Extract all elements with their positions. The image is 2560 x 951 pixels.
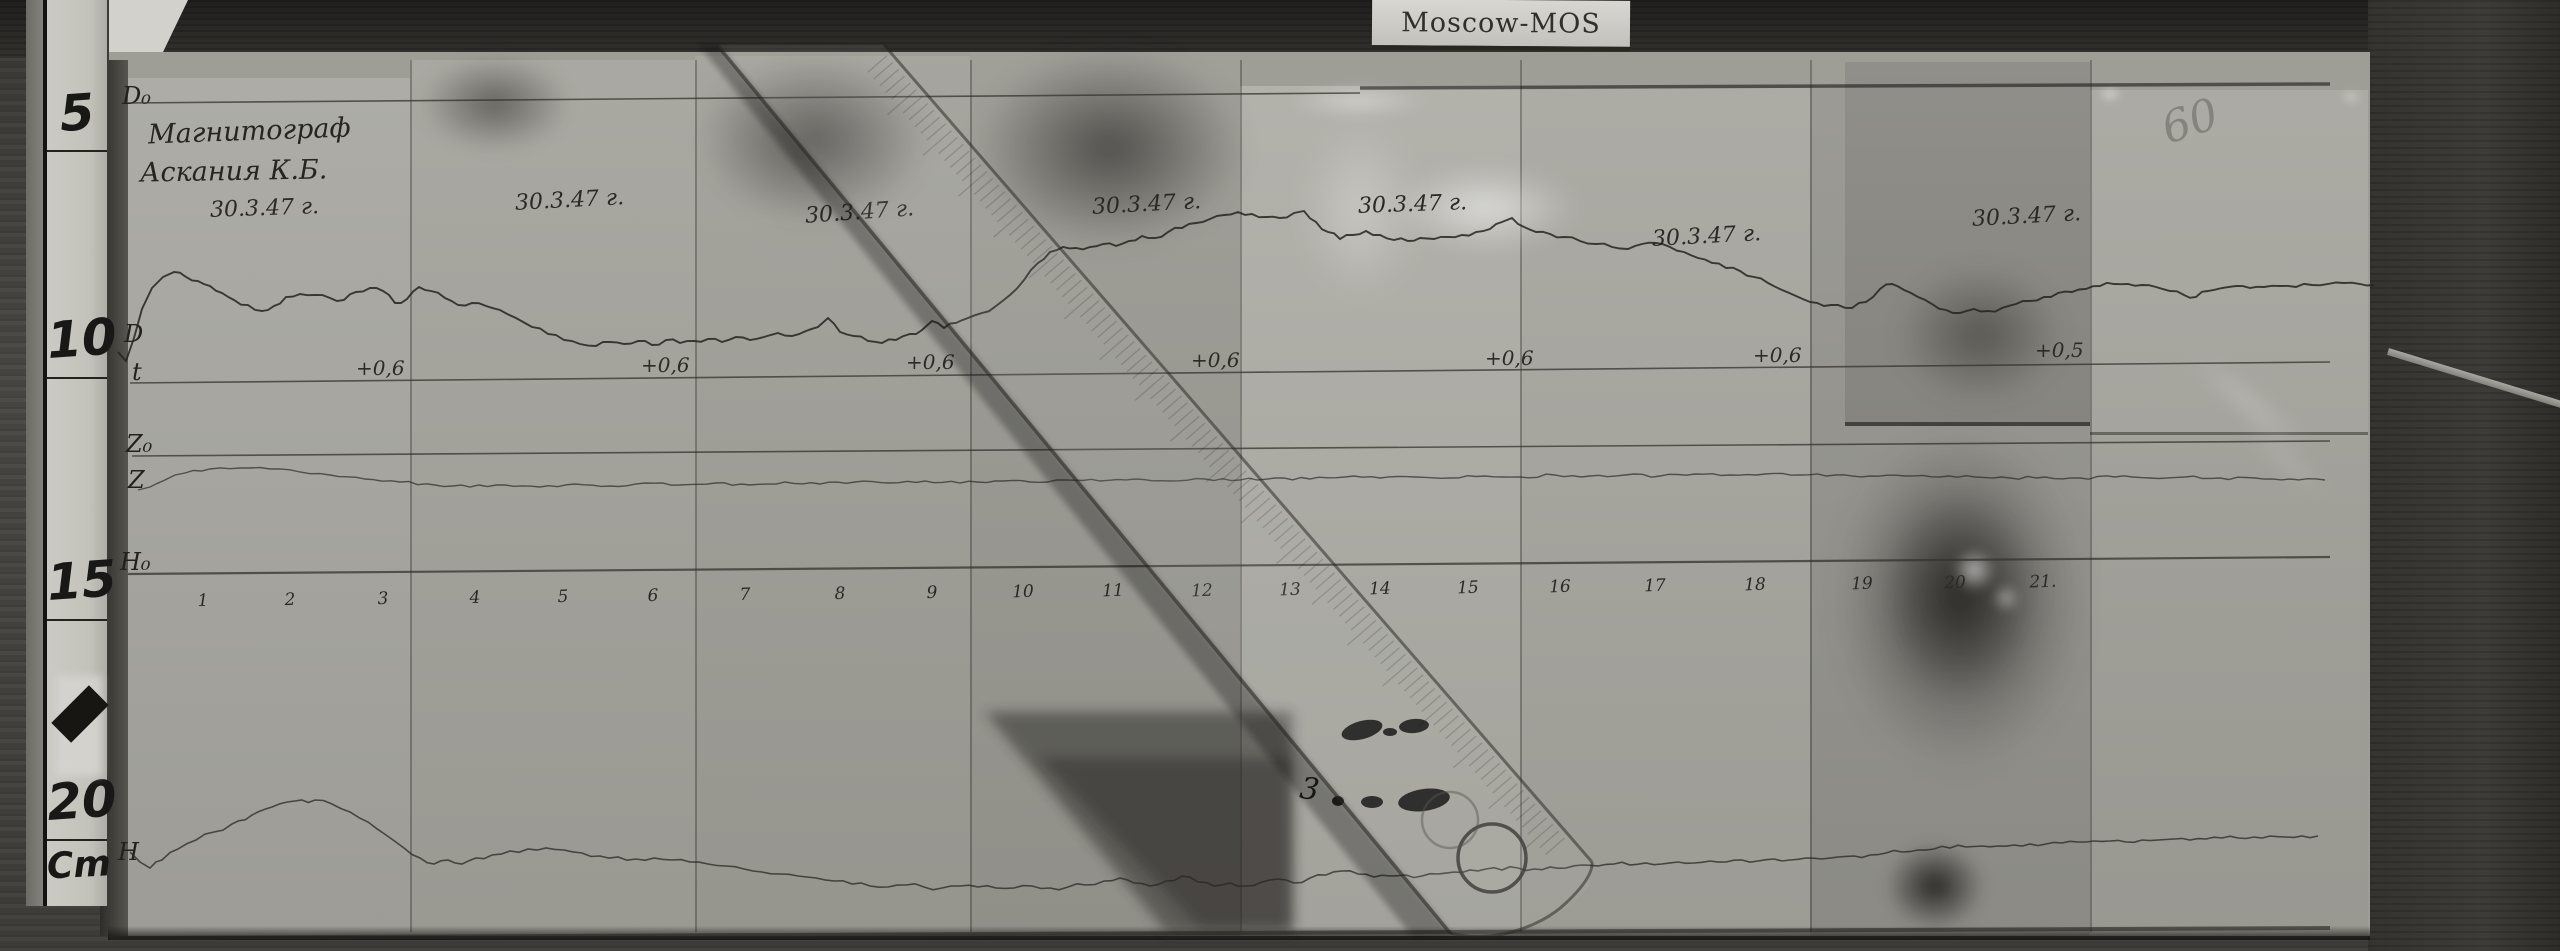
scale-value-note: +0,6: [906, 350, 955, 374]
cm-label-15: 15: [45, 550, 109, 612]
scale-value-note: +0,6: [1753, 343, 1802, 367]
hour-number-14: 14: [1369, 579, 1391, 600]
date-annotation: 30.3.47 г.: [1358, 190, 1468, 219]
station-label: Moscow-MOS: [1401, 7, 1601, 39]
hour-number-15: 15: [1457, 578, 1479, 599]
glare-highlight: [2098, 86, 2122, 102]
scale-value-note: +0,5: [2035, 338, 2084, 362]
hour-number-19: 19: [1851, 574, 1873, 595]
panel-seam-line: [1810, 60, 1812, 932]
trace-label-z0: Z₀: [126, 430, 152, 458]
hour-number-21: 21.: [2029, 572, 2057, 593]
trace-label-h0: H₀: [120, 548, 151, 576]
ink-blot: [1885, 842, 1985, 930]
hour-number-11: 11: [1102, 581, 1124, 602]
glare-highlight: [1288, 84, 1428, 118]
hour-number-6: 6: [647, 586, 659, 606]
hour-number-1: 1: [197, 591, 209, 611]
hour-number-12: 12: [1191, 581, 1213, 602]
glare-highlight: [1992, 584, 2020, 612]
cm-label-20: 20: [45, 770, 109, 832]
trace-label-t: t: [132, 358, 142, 386]
date-annotation: 30.3.47 г.: [210, 194, 320, 223]
scale-value-note: +0,6: [641, 353, 690, 377]
paper-bottom-edge-shadow: [108, 926, 2370, 940]
hour-number-20: 20: [1944, 573, 1966, 594]
trace-label-z: Z: [128, 466, 145, 494]
scale-value-note: +0,6: [1191, 348, 1240, 372]
hour-number-8: 8: [834, 584, 846, 604]
hour-number-10: 10: [1012, 582, 1034, 603]
scale-value-note: +0,6: [1485, 346, 1534, 370]
wood-right-area: [2368, 0, 2560, 951]
hour-number-4: 4: [469, 588, 481, 608]
scale-value-note: +0,6: [356, 356, 405, 380]
panel-seam-line: [970, 60, 972, 932]
hour-number-9: 9: [926, 583, 938, 603]
trace-label-d: D: [124, 320, 143, 348]
hour-number-17: 17: [1644, 576, 1666, 597]
hour-number-2: 2: [284, 590, 296, 610]
hour-number-5: 5: [557, 587, 569, 607]
stain: [1895, 265, 2065, 405]
photo-of-magnetogram: Moscow-MOS 5 10 15 20 Cm Магнитограф Аск…: [0, 0, 2560, 951]
cm-division-line: [47, 839, 107, 841]
station-label-card: Moscow-MOS: [1372, 0, 1630, 51]
trace-label-h: H: [118, 838, 139, 866]
cm-unit-label: Cm: [46, 843, 108, 887]
hour-number-16: 16: [1549, 577, 1571, 598]
trace-label-d0: D₀: [122, 82, 151, 110]
hour-number-18: 18: [1744, 575, 1766, 596]
panel-seam-line: [2090, 60, 2092, 932]
panel-seam-line: [1240, 60, 1242, 932]
cm-division-line: [47, 619, 107, 621]
hour-number-7: 7: [739, 585, 751, 605]
stain: [420, 56, 570, 151]
panel-seam-line: [410, 60, 412, 932]
panel-seam-line: [695, 60, 697, 932]
cm-division-line: [47, 377, 107, 379]
cm-label-10: 10: [45, 308, 109, 370]
cm-scale-ruler: 5 10 15 20 Cm: [26, 0, 112, 906]
glare-highlight: [2342, 90, 2360, 104]
hour-number-13: 13: [1279, 580, 1301, 601]
hour-number-3: 3: [377, 589, 389, 609]
instrument-model: Аскания К.Б.: [140, 154, 328, 188]
cm-ruler-backing: [26, 0, 43, 906]
wood-top-strip: [0, 0, 2560, 58]
cm-label-5: 5: [45, 82, 109, 144]
cm-division-line: [47, 150, 107, 152]
